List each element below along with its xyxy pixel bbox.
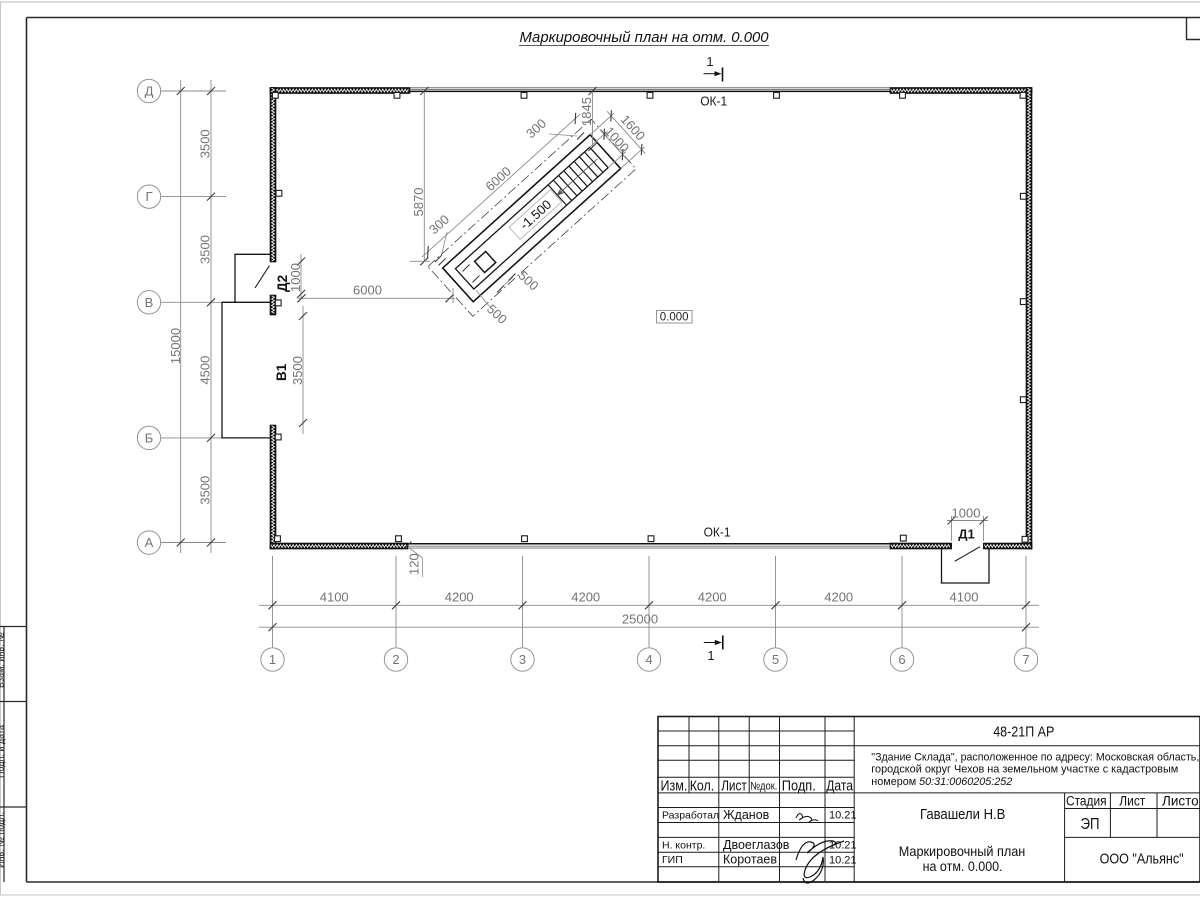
svg-text:3: 3 — [519, 652, 526, 667]
svg-text:Подп. и дата: Подп. и дата — [0, 725, 6, 778]
svg-text:№док.: №док. — [750, 781, 777, 793]
svg-text:4100: 4100 — [950, 590, 979, 605]
svg-text:Дата: Дата — [826, 778, 853, 795]
svg-text:ООО "Альянс": ООО "Альянс" — [1100, 852, 1184, 868]
svg-text:на отм. 0.000.: на отм. 0.000. — [923, 859, 1003, 874]
svg-text:1: 1 — [269, 652, 276, 667]
svg-text:3500: 3500 — [198, 235, 213, 264]
svg-text:120: 120 — [407, 553, 422, 575]
svg-text:5: 5 — [772, 652, 779, 667]
svg-text:10.21: 10.21 — [829, 810, 857, 822]
svg-text:1000: 1000 — [288, 263, 303, 292]
svg-text:Лист: Лист — [721, 778, 747, 795]
svg-text:Стадия: Стадия — [1066, 794, 1107, 809]
svg-text:Двоеглазов: Двоеглазов — [723, 838, 790, 852]
svg-text:Изм.: Изм. — [661, 778, 688, 795]
svg-text:6000: 6000 — [353, 283, 382, 298]
svg-text:4200: 4200 — [698, 590, 727, 605]
svg-text:Взам. инв. №: Взам. инв. № — [0, 632, 6, 688]
svg-text:4200: 4200 — [571, 590, 600, 605]
svg-text:"Здание Склада", расположенное: "Здание Склада", расположенное по адресу… — [871, 751, 1199, 763]
svg-text:25000: 25000 — [622, 612, 658, 627]
svg-text:Б: Б — [145, 430, 154, 445]
svg-text:1000: 1000 — [952, 506, 981, 521]
svg-text:10.21: 10.21 — [829, 855, 857, 867]
svg-text:Д: Д — [145, 84, 154, 99]
svg-text:4100: 4100 — [320, 590, 349, 605]
svg-text:4200: 4200 — [445, 590, 474, 605]
svg-text:Г: Г — [145, 189, 152, 204]
svg-text:Коротаев: Коротаев — [723, 853, 777, 867]
svg-text:2: 2 — [392, 652, 399, 667]
svg-text:Подп.: Подп. — [782, 778, 816, 795]
svg-text:3500: 3500 — [198, 476, 213, 505]
svg-text:В: В — [145, 295, 154, 310]
svg-text:В1: В1 — [274, 363, 289, 381]
svg-text:7: 7 — [1022, 652, 1029, 667]
svg-text:Инв. № подл.: Инв. № подл. — [0, 812, 6, 868]
svg-text:0.000: 0.000 — [660, 312, 689, 324]
svg-text:А: А — [145, 535, 154, 550]
svg-text:4200: 4200 — [824, 590, 853, 605]
svg-text:городской округ Чехов на земел: городской округ Чехов на земельном участ… — [871, 764, 1178, 776]
svg-text:Листов: Листов — [1162, 794, 1200, 809]
svg-text:Лист: Лист — [1119, 794, 1145, 809]
svg-text:Н. контр.: Н. контр. — [662, 840, 705, 852]
svg-text:Маркировочный план на отм. 0.0: Маркировочный план на отм. 0.000 — [520, 29, 770, 46]
svg-text:3500: 3500 — [198, 129, 213, 158]
svg-text:Разработал: Разработал — [662, 810, 719, 822]
svg-text:4: 4 — [645, 652, 652, 667]
svg-text:5870: 5870 — [411, 188, 426, 217]
svg-text:48-21П АР: 48-21П АР — [993, 725, 1054, 741]
svg-text:ОК-1: ОК-1 — [704, 525, 731, 540]
svg-text:3500: 3500 — [290, 356, 305, 385]
svg-text:ОК-1: ОК-1 — [700, 94, 727, 109]
svg-text:Кол.: Кол. — [690, 778, 715, 795]
svg-text:4500: 4500 — [198, 356, 213, 385]
svg-text:ЭП: ЭП — [1081, 816, 1100, 833]
svg-text:Д1: Д1 — [958, 527, 975, 542]
svg-text:15000: 15000 — [168, 328, 183, 364]
svg-text:Гавашели Н.В: Гавашели Н.В — [920, 807, 1005, 823]
svg-text:номером 50:31:0060205:252: номером 50:31:0060205:252 — [871, 776, 1013, 788]
svg-text:Жданов: Жданов — [723, 808, 770, 822]
svg-text:1845: 1845 — [579, 97, 594, 126]
svg-text:6: 6 — [898, 652, 905, 667]
svg-text:1: 1 — [707, 648, 714, 663]
svg-text:ГИП: ГИП — [662, 854, 683, 866]
svg-text:1: 1 — [706, 54, 713, 69]
svg-text:Маркировочный план: Маркировочный план — [899, 844, 1026, 859]
